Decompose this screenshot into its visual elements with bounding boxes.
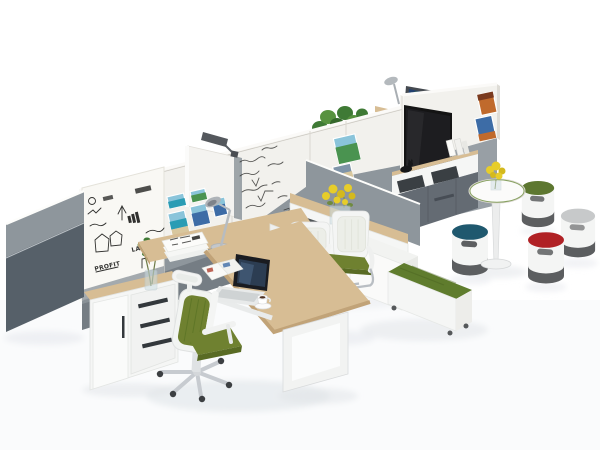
cabinet-door — [93, 295, 128, 389]
stool-green — [522, 181, 554, 227]
stool-red — [528, 232, 564, 283]
lamp-behind-wall — [383, 75, 399, 104]
stool-gray — [561, 209, 595, 258]
cabinet-drawers — [131, 284, 175, 374]
office-render: 3D render of a modular open-plan office:… — [0, 0, 600, 450]
office-scene: 3D render of a modular open-plan office:… — [0, 0, 600, 450]
bookends — [446, 139, 469, 157]
stool-blue — [452, 224, 488, 275]
